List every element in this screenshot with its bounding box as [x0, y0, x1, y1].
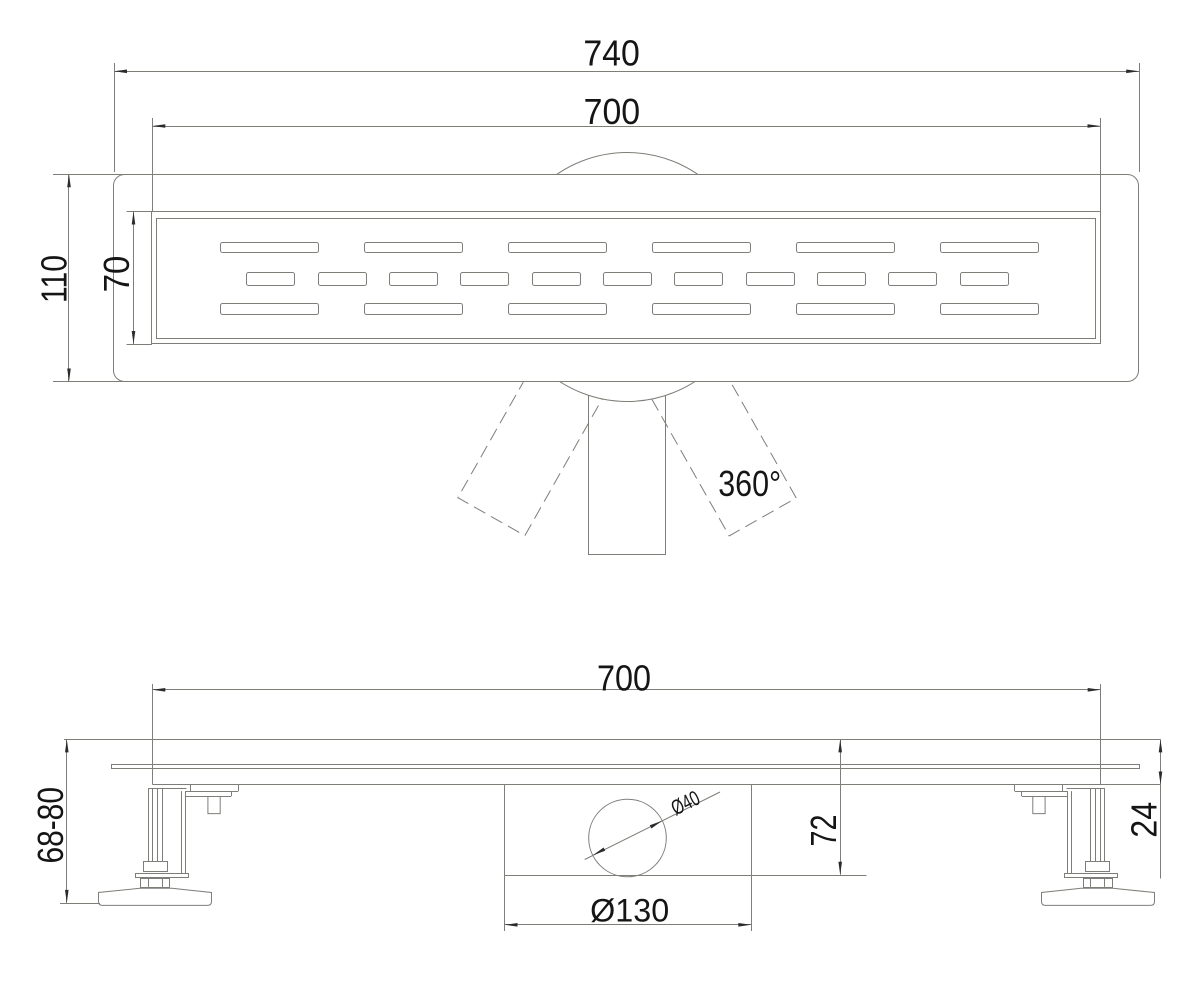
svg-text:68-80: 68-80: [30, 787, 71, 864]
svg-text:700: 700: [597, 658, 651, 699]
svg-text:24: 24: [1124, 802, 1165, 838]
svg-text:Ø130: Ø130: [590, 892, 669, 928]
svg-text:110: 110: [34, 255, 75, 303]
svg-text:70: 70: [96, 256, 137, 293]
svg-text:740: 740: [583, 33, 640, 74]
svg-text:360°: 360°: [718, 463, 781, 504]
svg-text:72: 72: [803, 815, 844, 847]
svg-text:700: 700: [584, 91, 641, 132]
